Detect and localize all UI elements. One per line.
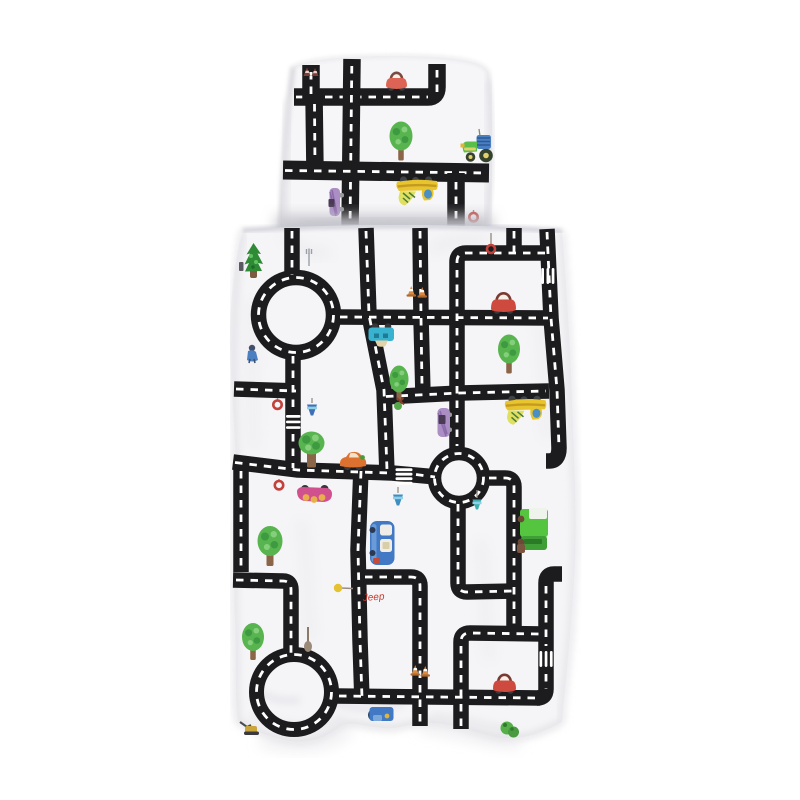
svg-text:Jeep: Jeep: [361, 591, 385, 604]
